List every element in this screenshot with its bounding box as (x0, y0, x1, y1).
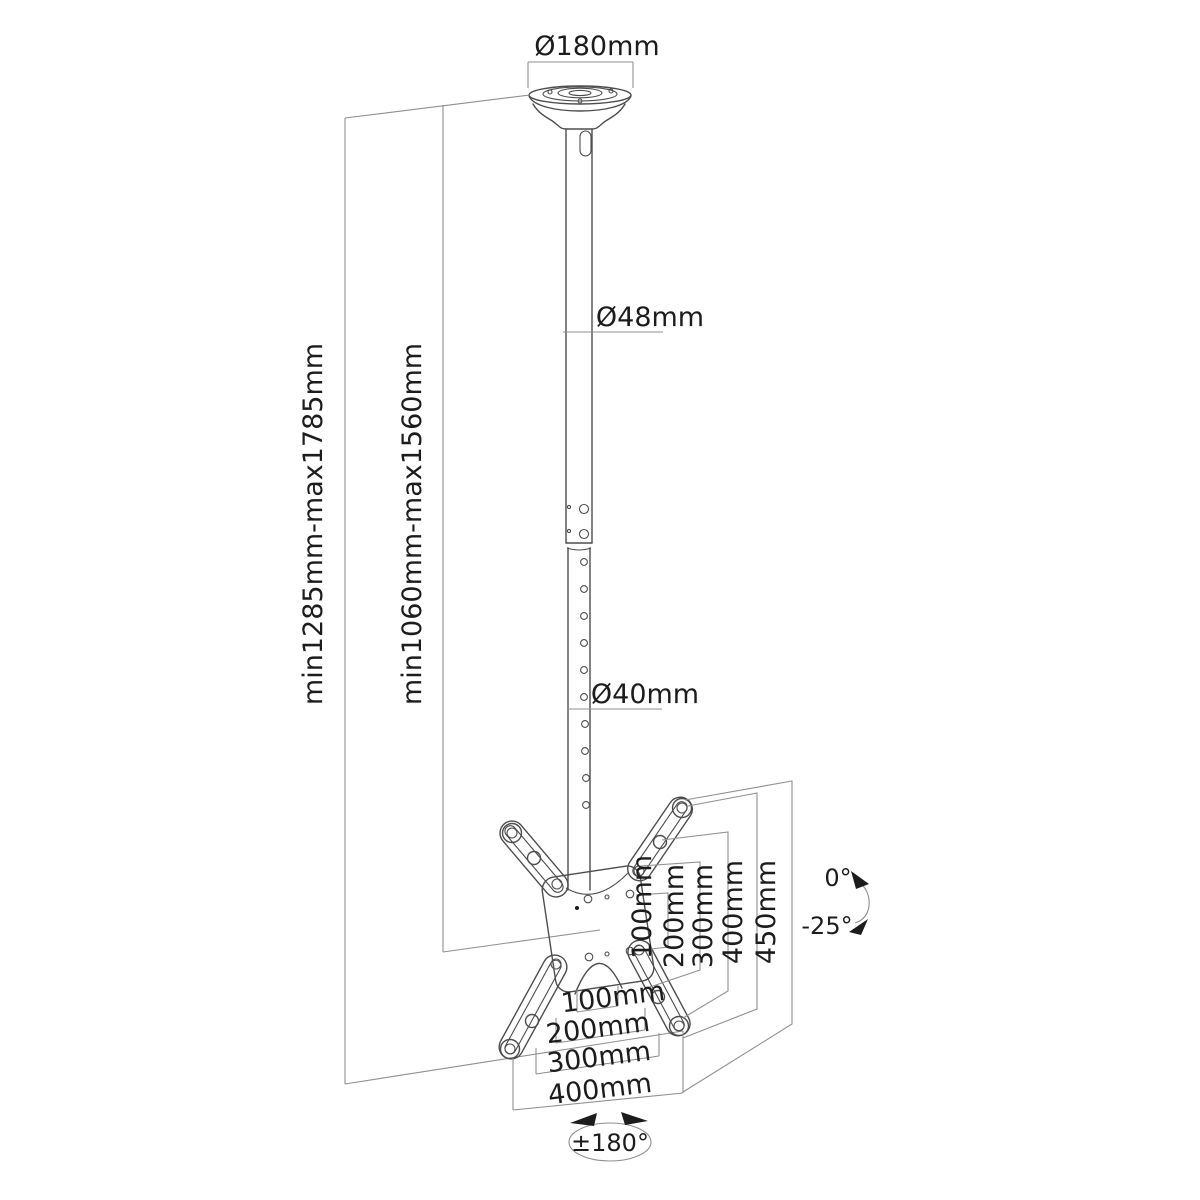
lower-pole (568, 548, 590, 890)
bracket-arm-top-left (495, 816, 573, 902)
ceiling-plate (529, 86, 631, 156)
vesa-v-label-400: 400mm (718, 860, 749, 964)
pole-hole (567, 505, 570, 508)
upper-pole-diameter-label: Ø48mm (596, 302, 704, 333)
pole-adjust-hole (582, 748, 589, 755)
pole-height-label: min1060mm-max1560mm (397, 343, 428, 705)
tilt-max-label: 0° (824, 864, 851, 892)
vesa-dot (605, 952, 609, 956)
vesa-horizontal-dimensions: 100mm 200mm 300mm 400mm (513, 976, 683, 1111)
tilt-arrow-up-icon (851, 871, 869, 889)
pole-hole (580, 505, 589, 514)
pole-adjust-hole (581, 613, 588, 620)
pole-adjust-hole (581, 694, 588, 701)
upper-pole (566, 129, 592, 550)
pole-adjust-hole (581, 667, 588, 674)
arm-tip-hole (677, 803, 687, 813)
vesa-v-label-200: 200mm (659, 864, 690, 968)
height-dimensions: min1285mm-max1785mm min1060mm-max1560mm (298, 95, 683, 1084)
vesa-hole (584, 895, 592, 903)
plate-diameter-dimension: Ø180mm (528, 31, 660, 88)
pole-adjust-hole (583, 775, 590, 782)
arm-tip-hole (670, 1017, 689, 1036)
vesa-dot (605, 895, 609, 899)
pole-adjust-hole (581, 586, 588, 593)
plate-hub-center (569, 90, 591, 95)
pole-height-bottom-leader (443, 930, 600, 952)
rotate-left-arrow-icon (570, 1113, 597, 1126)
plate-corner-hole (552, 879, 562, 889)
pole-collar-edge (567, 548, 591, 550)
rotation-label: ±180° (571, 1129, 649, 1157)
lower-pole-diameter-label: Ø40mm (591, 679, 699, 710)
vesa-dot (575, 906, 579, 910)
vesa-hole (585, 953, 593, 961)
ceiling-leader-line (345, 95, 530, 118)
plate-hub-ring (558, 88, 602, 98)
plate-top-arch (566, 873, 628, 894)
vesa-vertical-dimensions: 100mm 200mm 300mm 400mm 450mm (627, 781, 792, 1093)
pole-slot (580, 131, 591, 156)
pole-adjust-hole (582, 721, 589, 728)
ceiling-mount-diagram: Ø180mm Ø48mm Ø40mm (0, 0, 1200, 1200)
pole-hole (580, 530, 589, 539)
pole-adjust-hole (581, 559, 588, 566)
arm-mid-hole (528, 852, 541, 865)
arm-tip-hole (674, 1021, 684, 1031)
plate-diameter-label: Ø180mm (534, 31, 659, 62)
total-height-label: min1285mm-max1785mm (298, 343, 329, 705)
arm-tip-hole (505, 1044, 515, 1054)
upper-pole-diameter-dimension: Ø48mm (563, 302, 704, 333)
pole-hole (567, 529, 570, 532)
tilt-indicator: 0° -25° (801, 864, 869, 940)
pole-adjust-hole (583, 802, 590, 809)
vesa-v-label-450: 450mm (751, 860, 782, 964)
rotate-right-arrow-icon (621, 1112, 648, 1125)
rotation-indicator: ±180° (569, 1112, 651, 1161)
vesa-v-label-300: 300mm (688, 864, 719, 968)
tilt-min-label: -25° (801, 912, 852, 940)
pole-adjust-hole (581, 640, 588, 647)
vesa-v-label-100: 100mm (627, 855, 658, 959)
arm-tip-hole (507, 828, 517, 838)
plate-screw-hole (548, 90, 552, 94)
